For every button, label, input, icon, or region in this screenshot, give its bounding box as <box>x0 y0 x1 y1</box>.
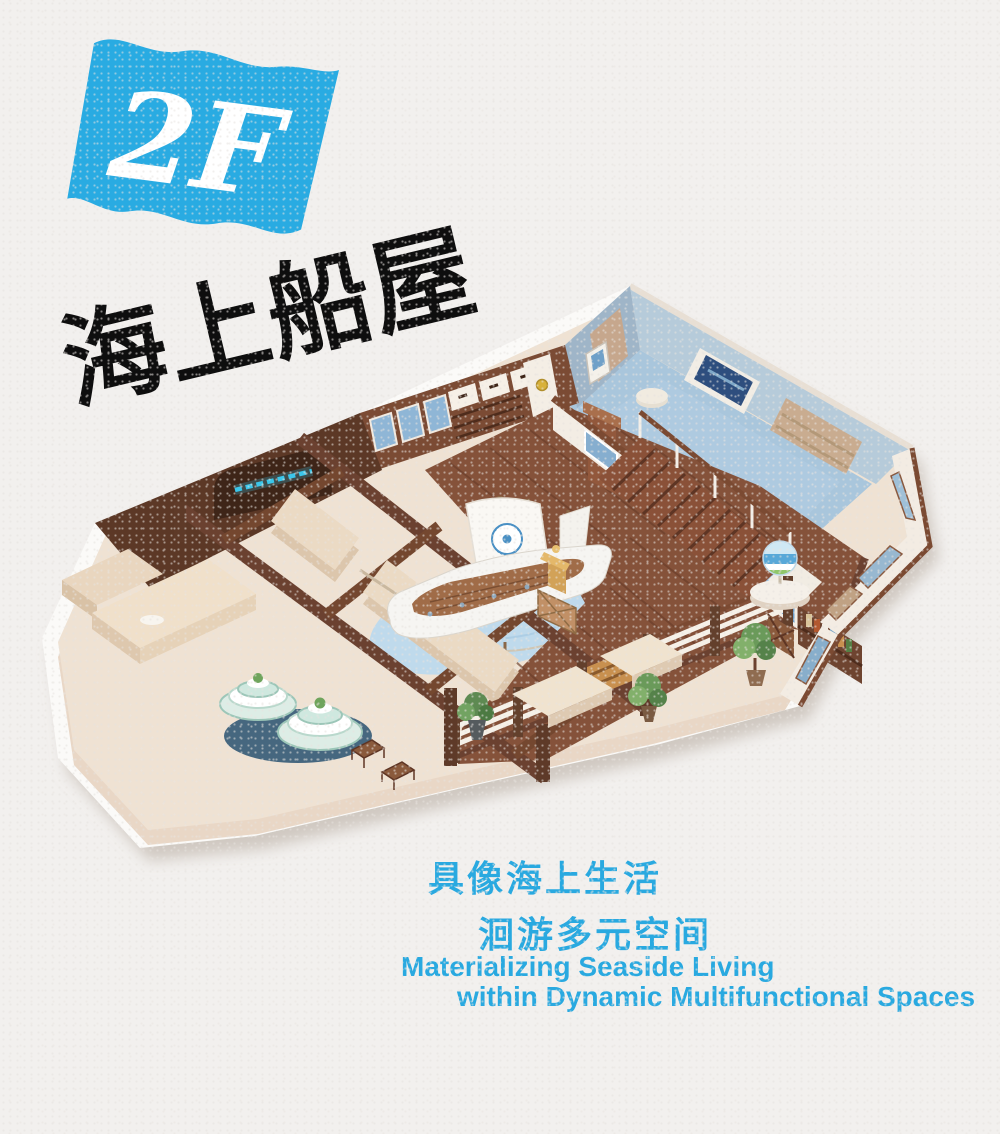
poster: 2F 海上船屋 具像海上生活 洄游多元空间 Materializing Seas… <box>0 0 1000 1134</box>
tagline-en-line2: within Dynamic Multifunctional Spaces <box>457 981 975 1013</box>
tagline-cn-line1: 具像海上生活 <box>428 850 662 902</box>
floor-badge: 2F <box>55 12 345 267</box>
floor-badge-label: 2F <box>101 64 296 227</box>
tagline-en-line1: Materializing Seaside Living <box>401 951 774 983</box>
